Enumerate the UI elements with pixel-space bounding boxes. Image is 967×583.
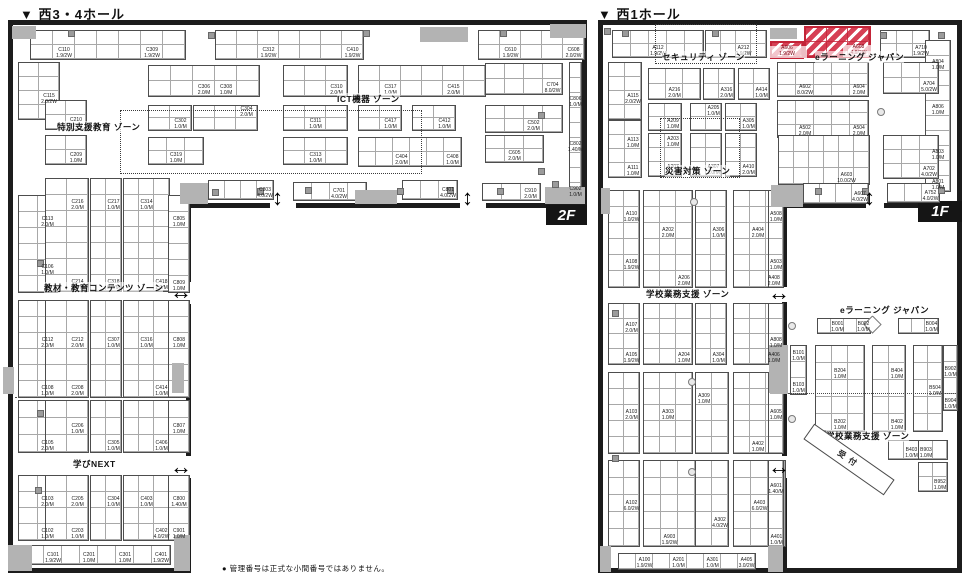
service-area bbox=[420, 27, 468, 42]
booth-block: C311 1.0/M bbox=[283, 105, 348, 131]
booth-cell bbox=[106, 301, 121, 317]
booth-cell bbox=[678, 512, 695, 529]
booth-cell bbox=[839, 136, 854, 152]
booth-cell bbox=[676, 319, 692, 334]
booth-cell bbox=[884, 136, 902, 150]
booth-cell bbox=[661, 461, 678, 478]
booth-cell bbox=[666, 69, 683, 84]
booth-cell bbox=[67, 435, 88, 452]
booth-cell bbox=[124, 365, 139, 381]
pillar-square bbox=[212, 189, 219, 196]
booth-cell bbox=[814, 63, 832, 74]
booth-cell bbox=[46, 301, 67, 317]
booth-cell bbox=[734, 304, 750, 319]
booth-cell bbox=[91, 476, 106, 492]
booth-cell bbox=[644, 461, 661, 478]
booth-label: C704 8.0/2W bbox=[538, 83, 567, 95]
booth-label: A605 1.0/M bbox=[764, 410, 788, 422]
booth-cell bbox=[19, 365, 38, 381]
booth-cell bbox=[796, 63, 814, 74]
booth-cell bbox=[734, 239, 750, 255]
booth-cell bbox=[46, 317, 67, 333]
booth-block: C910 2.0/M bbox=[482, 183, 541, 201]
booth-block: B004 1.0/M bbox=[898, 318, 939, 334]
booth-cell bbox=[919, 463, 933, 477]
booth-cell bbox=[809, 152, 824, 168]
booth-block: C314 1.0/MC418 1.0/M bbox=[123, 178, 170, 292]
booth-cell bbox=[139, 349, 154, 365]
booth-cell bbox=[139, 227, 154, 243]
booth-label: C414 1.0/M bbox=[149, 386, 174, 398]
booth-label: C806 1.0/M bbox=[565, 97, 586, 109]
booth-cell bbox=[660, 319, 676, 334]
booth-cell bbox=[624, 512, 639, 529]
booth-label: C113 2.0/M bbox=[33, 217, 62, 229]
booth-cell bbox=[769, 319, 783, 334]
booth-block: A100 1.9/2WA201 1.0/MA301 1.0/MA405 3.0/… bbox=[618, 553, 756, 570]
floor-plan-canvas: ▼ 西3・4ホール ▼ 西1ホール 2F 1F C110 1.9/2WC309 … bbox=[0, 0, 967, 583]
booth-cell bbox=[832, 63, 850, 74]
booth-label: B002 1.0/M bbox=[852, 322, 875, 334]
pillar-square bbox=[815, 188, 822, 195]
booth-cell bbox=[464, 66, 485, 81]
booth-cell bbox=[19, 418, 38, 435]
booth-label: C404 2.0/M bbox=[388, 155, 415, 167]
booth-label: C805 1.0/M bbox=[164, 217, 194, 229]
booth-label: C305 1.0/M bbox=[101, 441, 126, 453]
booth-cell bbox=[609, 529, 624, 546]
booth-cell bbox=[216, 45, 237, 59]
booth-cell bbox=[169, 401, 189, 418]
booth-cell bbox=[609, 512, 624, 529]
booth-cell bbox=[326, 106, 347, 118]
booth-cell bbox=[778, 113, 796, 125]
booth-cell bbox=[734, 271, 750, 287]
booth-label: A414 1.0/M bbox=[749, 88, 774, 100]
booth-cell bbox=[215, 118, 236, 130]
booth-label: C415 2.0/M bbox=[438, 85, 469, 97]
booth-cell bbox=[696, 334, 711, 349]
booth-label: A602 8.0/2W bbox=[791, 85, 819, 97]
booth-cell bbox=[154, 259, 169, 275]
booth-cell bbox=[691, 134, 706, 148]
booth-cell bbox=[734, 207, 750, 223]
entrance-arrow: ↕ bbox=[864, 187, 875, 209]
booth-cell bbox=[809, 168, 824, 184]
booth-cell bbox=[139, 243, 154, 259]
booth-label: A808 1.0/M bbox=[764, 338, 788, 350]
booth-cell bbox=[359, 106, 380, 118]
booth-block: A309 1.0/M bbox=[695, 372, 729, 454]
booth-cell bbox=[734, 421, 750, 437]
booth-block: A115 2.0/2W bbox=[608, 62, 642, 120]
booth-block: C312 1.9/2WC410 1.9/2W bbox=[215, 30, 364, 60]
booth-cell bbox=[711, 304, 726, 319]
booth-cell bbox=[873, 346, 889, 363]
booth-cell bbox=[832, 74, 850, 85]
booth-cell bbox=[609, 239, 624, 255]
booth-cell bbox=[734, 529, 751, 546]
booth-cell bbox=[149, 81, 171, 96]
booth-cell bbox=[67, 508, 88, 524]
booth-cell bbox=[734, 461, 751, 478]
booth-label: A204 1.0/M bbox=[671, 353, 697, 365]
booth-cell bbox=[624, 239, 639, 255]
booth-cell bbox=[39, 63, 59, 77]
booth-block: C403 1.0/MC402 4.0/2W bbox=[123, 475, 170, 541]
booth-cell bbox=[889, 397, 905, 414]
booth-label: C201 1.0/M bbox=[75, 553, 103, 565]
booth-cell bbox=[97, 45, 119, 59]
booth-cell bbox=[676, 255, 692, 271]
booth-label: C502 2.0/M bbox=[519, 121, 548, 133]
booth-cell bbox=[66, 101, 86, 115]
booth-cell bbox=[751, 31, 766, 44]
booth-cell bbox=[194, 106, 215, 118]
booth-cell bbox=[854, 152, 869, 168]
pillar-square bbox=[35, 487, 42, 494]
booth-block: C704 8.0/2W bbox=[485, 63, 563, 95]
booth-cell bbox=[67, 365, 88, 381]
booth-cell bbox=[300, 45, 321, 59]
booth-cell bbox=[486, 136, 505, 149]
booth-cell bbox=[524, 136, 543, 149]
wall bbox=[8, 20, 587, 25]
booth-cell bbox=[66, 136, 86, 150]
booth-cell bbox=[169, 508, 189, 524]
pillar-square bbox=[500, 30, 507, 37]
pillar-square bbox=[497, 188, 504, 195]
booth-cell bbox=[848, 380, 864, 397]
booth-cell bbox=[660, 239, 676, 255]
booth-label: A508 1.0/M bbox=[764, 212, 788, 224]
booth-cell bbox=[67, 476, 88, 492]
booth-cell bbox=[106, 259, 121, 275]
booth-cell bbox=[816, 346, 832, 363]
booth-cell bbox=[570, 78, 581, 93]
booth-cell bbox=[91, 243, 106, 259]
booth-label: A306 1.0/M bbox=[706, 228, 731, 240]
booth-cell bbox=[696, 373, 712, 389]
booth-cell bbox=[139, 508, 154, 524]
booth-cell bbox=[914, 346, 928, 363]
wall bbox=[8, 20, 13, 573]
booth-label: C203 1.0/M bbox=[62, 529, 93, 541]
booth-cell bbox=[154, 365, 169, 381]
booth-cell bbox=[305, 138, 326, 151]
booth-cell bbox=[644, 373, 660, 389]
booth-cell bbox=[850, 113, 868, 125]
booth-cell bbox=[660, 207, 676, 223]
booth-cell bbox=[779, 168, 794, 184]
booth-label: A206 2.0/M bbox=[671, 276, 697, 288]
booth-cell bbox=[91, 317, 106, 333]
booth-label: A702 4.0/2W bbox=[915, 167, 943, 179]
zone-label: セキュリティ ゾーン bbox=[662, 51, 745, 63]
booth-cell bbox=[706, 148, 721, 162]
booth-label: C302 1.0/M bbox=[165, 119, 196, 131]
booth-cell bbox=[769, 421, 783, 437]
booth-label: B204 1.0/M bbox=[827, 369, 853, 381]
booth-cell bbox=[154, 301, 169, 317]
booth-block: A306 1.0/M bbox=[695, 190, 727, 288]
wall bbox=[598, 20, 603, 573]
booth-cell bbox=[696, 304, 711, 319]
booth-label: C800 1.40/M bbox=[164, 497, 194, 509]
booth-block: C304 2.0/M bbox=[193, 105, 258, 131]
booth-cell bbox=[19, 105, 39, 119]
zone-label: 特別支援教育 ゾーン bbox=[57, 121, 140, 133]
booth-label: C106 1.0/M bbox=[33, 265, 62, 277]
booth-cell bbox=[625, 121, 641, 135]
booth-label: C205 2.0/M bbox=[62, 497, 93, 509]
pillar-square bbox=[538, 168, 545, 175]
booth-cell bbox=[644, 349, 660, 364]
booth-cell bbox=[696, 271, 711, 287]
booth-cell bbox=[644, 389, 660, 405]
booth-cell bbox=[67, 227, 88, 243]
pillar-square bbox=[604, 28, 611, 35]
booth-cell bbox=[685, 31, 703, 44]
booth-label: A316 2.0/M bbox=[714, 88, 739, 100]
booth-cell bbox=[124, 211, 139, 227]
booth-cell bbox=[778, 101, 796, 113]
booth-cell bbox=[486, 106, 505, 119]
booth-block: B952 1.0/M bbox=[918, 462, 948, 492]
booth-label: C112 2.0/M bbox=[33, 338, 62, 350]
booth-block: A113 1.0/MA111 1.0/M bbox=[608, 120, 642, 178]
booth-cell bbox=[796, 113, 814, 125]
booth-label: A606 1.9/2W bbox=[767, 46, 807, 58]
booth-label: C808 1.0/M bbox=[164, 338, 194, 350]
service-area bbox=[771, 185, 803, 207]
booth-label: C217 1.0/M bbox=[101, 200, 126, 212]
booth-cell bbox=[91, 401, 106, 418]
booth-cell bbox=[609, 373, 624, 389]
booth-block: C209 1.0/M bbox=[45, 135, 87, 165]
booth-cell bbox=[848, 346, 864, 363]
booth-cell bbox=[769, 512, 783, 529]
dotted-divider bbox=[788, 393, 956, 394]
booth-cell bbox=[106, 365, 121, 381]
pillar-square bbox=[208, 32, 215, 39]
booth-cell bbox=[19, 317, 38, 333]
booth-block: A607 4.0/2W bbox=[803, 183, 869, 204]
booth-label: A403 6.0/2W bbox=[746, 501, 773, 513]
booth-cell bbox=[46, 227, 67, 243]
booth-cell bbox=[779, 152, 794, 168]
booth-cell bbox=[676, 304, 692, 319]
booth-label: A504 2.0/M bbox=[845, 126, 873, 138]
booth-cell bbox=[814, 113, 832, 125]
booth-cell bbox=[914, 397, 928, 414]
booth-label: A113 1.0/M bbox=[620, 138, 646, 150]
booth-cell bbox=[106, 317, 121, 333]
entrance-arrow: ↕ bbox=[272, 187, 283, 209]
pillar-circle bbox=[690, 198, 698, 206]
service-area bbox=[8, 545, 32, 571]
booth-cell bbox=[609, 105, 625, 119]
booth-cell bbox=[665, 104, 681, 117]
booth-label: C408 1.0/M bbox=[439, 155, 466, 167]
booth-cell bbox=[403, 181, 421, 199]
booth-cell bbox=[443, 66, 464, 81]
booth-cell bbox=[660, 389, 676, 405]
pillar-circle bbox=[877, 108, 885, 116]
booth-cell bbox=[660, 334, 676, 349]
booth-cell bbox=[683, 69, 700, 84]
booth-label: A601 1.40/M bbox=[764, 484, 788, 496]
booth-label: A401 1.0/M bbox=[763, 535, 790, 547]
booth-cell bbox=[124, 435, 139, 452]
booth-cell bbox=[661, 512, 678, 529]
booth-cell bbox=[644, 191, 660, 207]
booth-cell bbox=[711, 207, 726, 223]
booth-cell bbox=[734, 389, 750, 405]
booth-cell bbox=[609, 149, 625, 163]
booth-cell bbox=[741, 134, 756, 148]
booth-cell bbox=[644, 319, 660, 334]
booth-label: C212 2.0/M bbox=[62, 338, 93, 350]
booth-block: A414 1.0/M bbox=[738, 68, 770, 100]
booth-block: A209 1.0/M bbox=[648, 103, 682, 131]
booth-cell bbox=[486, 64, 505, 79]
booth-cell bbox=[609, 389, 624, 405]
booth-cell bbox=[711, 334, 726, 349]
booth-cell bbox=[832, 380, 848, 397]
booth-cell bbox=[676, 437, 692, 453]
booth-cell bbox=[624, 373, 639, 389]
booth-cell bbox=[644, 478, 661, 495]
booth-cell bbox=[19, 508, 38, 524]
booth-cell bbox=[779, 136, 794, 152]
booth-cell bbox=[711, 191, 726, 207]
booth-cell bbox=[609, 63, 625, 77]
booth-label: A107 2.0/M bbox=[619, 323, 644, 335]
booth-cell bbox=[169, 317, 189, 333]
service-area bbox=[3, 367, 14, 394]
booth-cell bbox=[712, 478, 728, 495]
booth-label: A404 2.0/M bbox=[745, 228, 771, 240]
booth-label: A301 1.0/M bbox=[699, 558, 726, 570]
booth-label: C312 1.9/2W bbox=[253, 48, 284, 60]
booth-cell bbox=[609, 121, 625, 135]
booth-cell bbox=[820, 184, 836, 203]
booth-label: A502 2.0/M bbox=[791, 126, 819, 138]
booth-cell bbox=[814, 101, 832, 113]
booth-cell bbox=[427, 138, 444, 152]
booth-cell bbox=[149, 138, 167, 151]
booth-cell bbox=[660, 421, 676, 437]
entrance-arrow: ↔ bbox=[170, 281, 192, 303]
booth-cell bbox=[139, 401, 154, 418]
booth-cell bbox=[609, 461, 624, 478]
booth-cell bbox=[736, 31, 751, 44]
booth-cell bbox=[644, 207, 660, 223]
entrance-arrow: ↔ bbox=[170, 456, 192, 478]
booth-cell bbox=[691, 117, 706, 130]
booth-cell bbox=[678, 478, 695, 495]
booth-cell bbox=[609, 223, 624, 239]
booth-cell bbox=[139, 259, 154, 275]
booth-cell bbox=[91, 418, 106, 435]
booth-cell bbox=[154, 401, 169, 418]
booth-cell bbox=[644, 239, 660, 255]
booth-label: C313 1.0/M bbox=[300, 153, 331, 165]
booth-cell bbox=[154, 349, 169, 365]
booth-cell bbox=[486, 119, 505, 132]
booth-cell bbox=[305, 66, 326, 81]
booth-cell bbox=[19, 228, 38, 244]
booth-cell bbox=[139, 301, 154, 317]
booth-label: A903 1.9/2W bbox=[656, 535, 683, 547]
booth-cell bbox=[778, 74, 796, 85]
booth-cell bbox=[712, 437, 728, 453]
booth-cell bbox=[721, 31, 736, 44]
booth-cell bbox=[444, 138, 461, 152]
booth-cell bbox=[778, 63, 796, 74]
service-area bbox=[601, 188, 610, 214]
booth-cell bbox=[106, 179, 121, 195]
booth-cell bbox=[873, 380, 889, 397]
booth-block: A316 2.0/M bbox=[703, 68, 735, 100]
booth-cell bbox=[625, 77, 641, 91]
booth-cell bbox=[46, 179, 67, 195]
booth-cell bbox=[46, 401, 67, 418]
pillar-square bbox=[938, 32, 945, 39]
booth-cell bbox=[67, 401, 88, 418]
booth-cell bbox=[124, 227, 139, 243]
booth-block: A204 1.0/M bbox=[643, 303, 693, 365]
booth-cell bbox=[570, 168, 581, 183]
booth-block: C110 1.9/2WC309 1.9/2W bbox=[30, 30, 186, 60]
booth-cell bbox=[914, 363, 928, 380]
service-area bbox=[768, 546, 783, 572]
booth-cell bbox=[169, 228, 189, 244]
booth-cell bbox=[873, 397, 889, 414]
booth-label: B504 1.0/M bbox=[923, 386, 947, 398]
booth-cell bbox=[194, 118, 215, 130]
pillar-circle bbox=[688, 468, 696, 476]
booth-label: C209 1.0/M bbox=[61, 153, 91, 165]
booth-cell bbox=[750, 304, 766, 319]
booth-cell bbox=[124, 401, 139, 418]
booth-cell bbox=[832, 101, 850, 113]
booth-cell bbox=[380, 106, 401, 118]
booth-cell bbox=[832, 346, 848, 363]
booth-cell bbox=[326, 66, 347, 81]
booth-cell bbox=[410, 138, 427, 152]
booth-label: A402 1.0/M bbox=[745, 442, 771, 454]
booth-cell bbox=[570, 108, 581, 123]
pillar-square bbox=[712, 30, 719, 37]
booth-cell bbox=[691, 148, 706, 162]
booth-label: C208 2.0/M bbox=[62, 386, 93, 398]
booth-cell bbox=[124, 418, 139, 435]
booth-cell bbox=[67, 179, 88, 195]
pillar-square bbox=[37, 410, 44, 417]
booth-cell bbox=[660, 437, 676, 453]
booth-cell bbox=[106, 381, 121, 397]
booth-cell bbox=[769, 437, 783, 453]
booth-cell bbox=[401, 66, 422, 81]
booth-cell bbox=[816, 397, 832, 414]
booth-cell bbox=[154, 508, 169, 524]
booth-cell bbox=[750, 373, 766, 389]
booth-block: A603 10.0/2W bbox=[778, 135, 870, 185]
booth-block: A502 2.0/MA504 2.0/M bbox=[777, 100, 869, 138]
booth-cell bbox=[644, 421, 660, 437]
